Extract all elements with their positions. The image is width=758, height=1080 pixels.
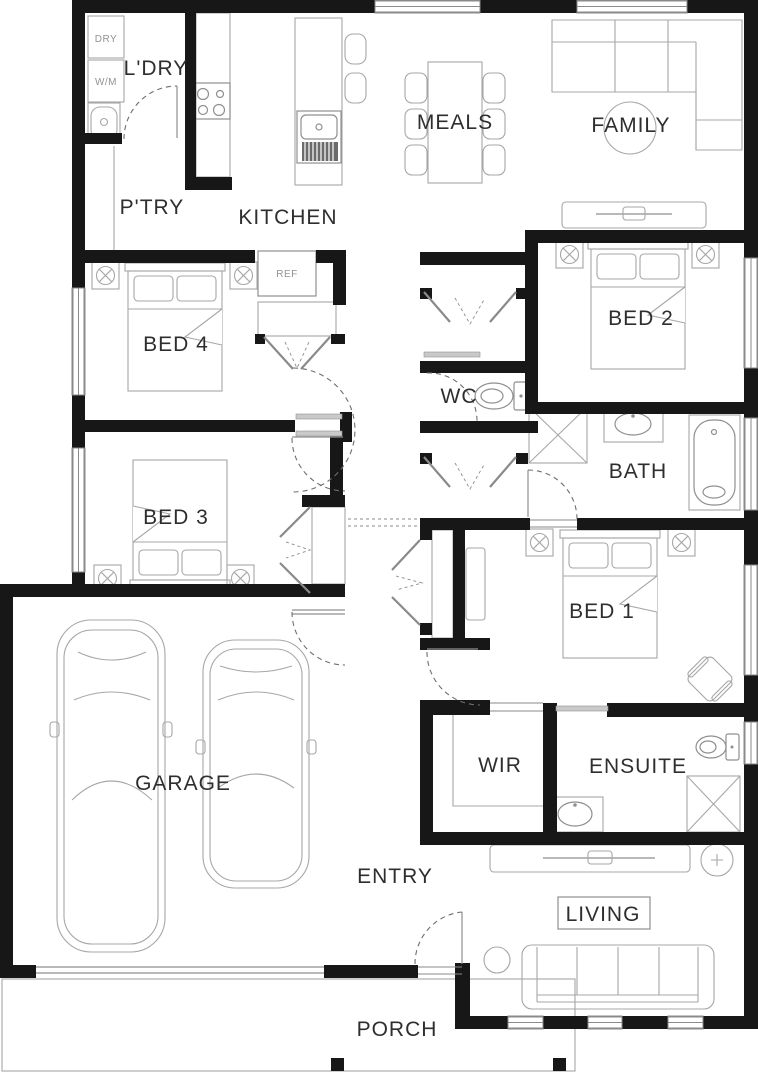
bed3-robe-bifold [280,507,310,593]
room-label-kitchen: KITCHEN [238,206,337,229]
room-label-bed2: BED 2 [608,307,674,330]
bed3-robe-shelf [312,507,345,584]
room-label-laundry: L'DRY [124,57,189,80]
bed4-bed [125,263,225,391]
window [668,1016,703,1029]
room-label-garage: GARAGE [135,772,231,795]
bath-fixtures [529,407,740,510]
armchair [684,653,736,705]
stool [345,34,366,64]
window [744,418,758,510]
dryer-label: DRY [95,34,117,45]
bed4-robe-shelf [258,302,336,336]
living-furniture [484,844,733,1009]
floor-plan-drawing: DRY W/M REF L'DRY P'TRY KITCHEN MEALS FA… [0,0,758,1080]
room-label-entry: ENTRY [357,865,433,888]
window [375,0,480,13]
window [72,288,85,395]
floor-plan: DRY W/M REF L'DRY P'TRY KITCHEN MEALS FA… [0,0,758,1080]
bed3-furniture [94,460,345,592]
wir-doorway [490,703,543,711]
room-label-wc: WC [441,385,478,408]
ceiling-light-icon [230,262,257,289]
room-label-bed4: BED 4 [143,333,209,356]
kitchen-bench [196,13,230,177]
bed4-robe-bifold [264,337,330,369]
front-door [415,912,462,974]
garage-entry-door [292,610,345,665]
room-label-bath: BATH [609,460,667,483]
room-label-living: LIVING [566,903,641,926]
round-side-table [484,947,510,973]
linen-bifold [424,292,516,324]
window [577,0,687,13]
bathtub [689,415,740,510]
window [744,565,758,675]
ceiling-light-icon [526,529,553,556]
laundry-door [124,86,177,139]
cooktop [192,83,230,119]
wc-slider-door [424,352,480,357]
room-label-meals: MEALS [417,111,493,134]
porch-post [553,1058,566,1071]
ceiling-light-icon [692,241,719,268]
bed2-bed [588,241,688,369]
linen-bifold [424,457,516,489]
bed1-door [427,649,480,705]
family-tv-unit [562,202,706,228]
room-label-wir: WIR [478,754,522,777]
dresser [466,548,485,620]
porch-post [331,1058,344,1071]
ensuite-slider-door [556,706,608,711]
wc-fixtures [475,382,528,410]
hall-slider-door [296,431,342,436]
garage-door-line [36,967,324,973]
car [196,640,316,888]
room-label-pantry: P'TRY [120,196,185,219]
stool [345,73,366,103]
window [744,258,758,368]
window [72,448,85,572]
bath-door [528,470,577,527]
bed1-bed [560,530,660,658]
room-label-family: FAMILY [591,114,670,137]
ceiling-light-icon [668,529,695,556]
ceiling-light-icon [556,241,583,268]
window [588,1016,622,1029]
ceiling-light-icon [92,262,119,289]
room-label-bed3: BED 3 [143,506,209,529]
hall-slider-door [296,414,342,419]
bed2-furniture [556,241,719,369]
bed1-robe-shelf [432,530,453,638]
room-label-ensuite: ENSUITE [589,755,687,778]
room-label-porch: PORCH [357,1018,438,1041]
window [744,722,758,764]
living-sofa [522,945,714,1009]
room-label-bed1: BED 1 [569,600,635,623]
bed1-robe-bifold [392,540,422,625]
window [508,1016,543,1029]
bed4-furniture [92,262,336,391]
fridge-label: REF [276,269,298,280]
hall-opening-line [348,519,420,526]
washer-label: W/M [95,77,117,88]
